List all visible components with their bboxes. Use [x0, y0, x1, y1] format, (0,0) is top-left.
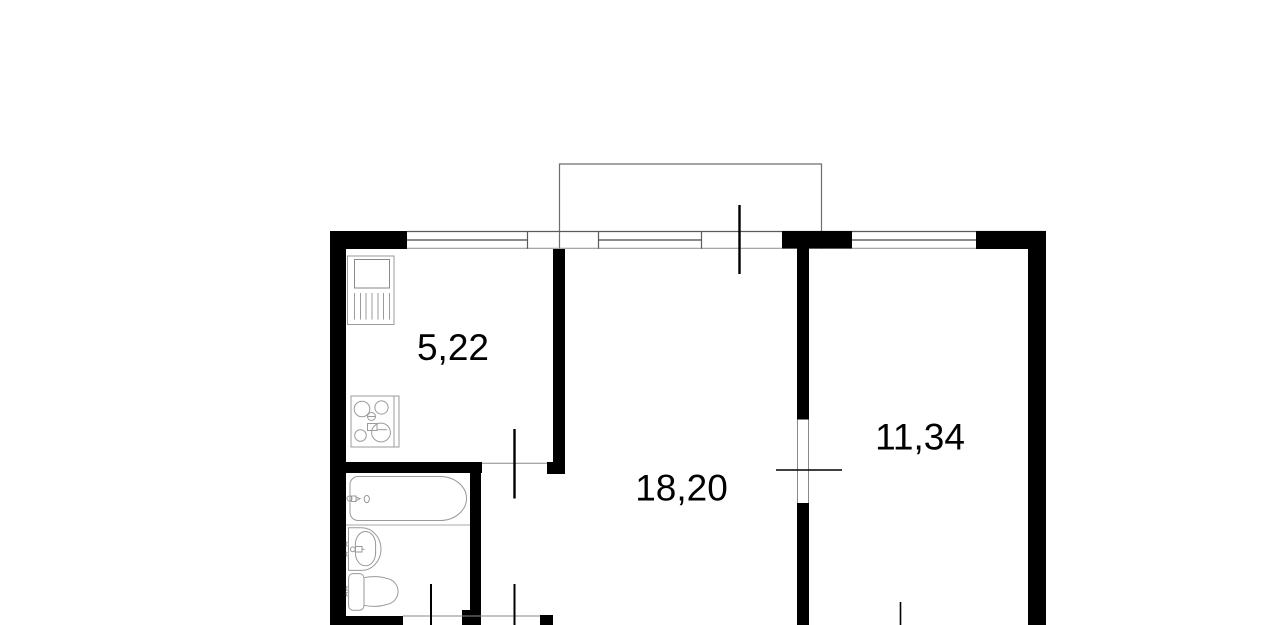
svg-text:11,34: 11,34	[875, 417, 965, 458]
svg-text:5,22: 5,22	[417, 327, 489, 368]
svg-text:18,20: 18,20	[635, 468, 728, 509]
